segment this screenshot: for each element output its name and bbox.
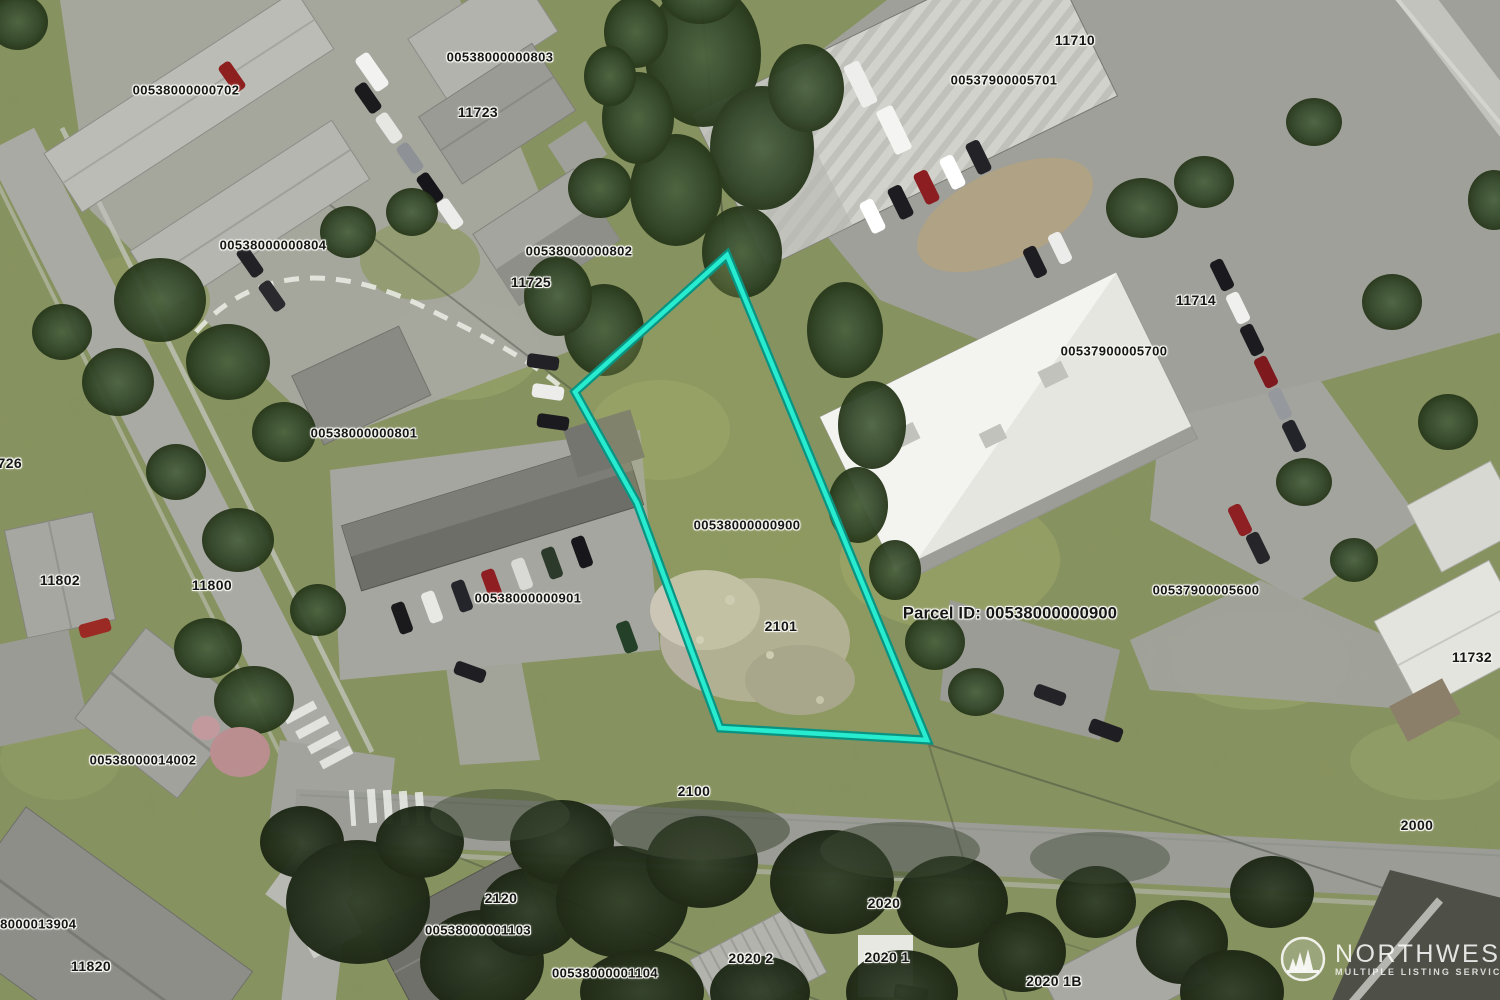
- evergreen-trees-icon: [1280, 936, 1326, 982]
- mls-watermark: NORTHWEST MULTIPLE LISTING SERVICE.: [1280, 936, 1500, 982]
- watermark-tagline: MULTIPLE LISTING SERVICE.: [1335, 967, 1500, 977]
- watermark-brand: NORTHWEST: [1335, 942, 1500, 966]
- aerial-basemap: [0, 0, 1500, 1000]
